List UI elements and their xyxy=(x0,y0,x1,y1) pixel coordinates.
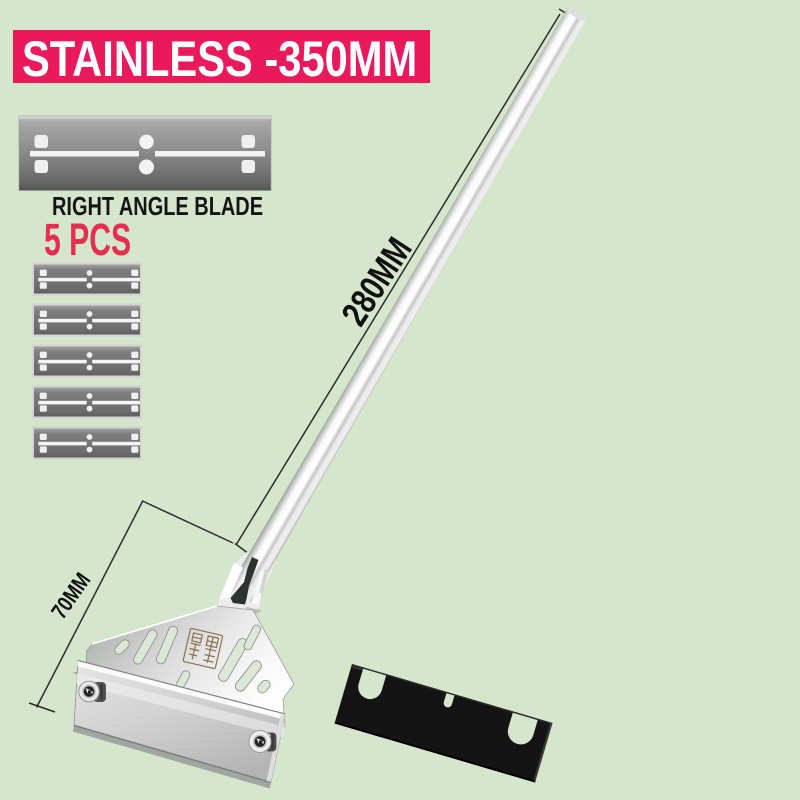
svg-text:5 PCS: 5 PCS xyxy=(44,215,131,266)
svg-text:STAINLESS -350MM: STAINLESS -350MM xyxy=(22,30,417,86)
